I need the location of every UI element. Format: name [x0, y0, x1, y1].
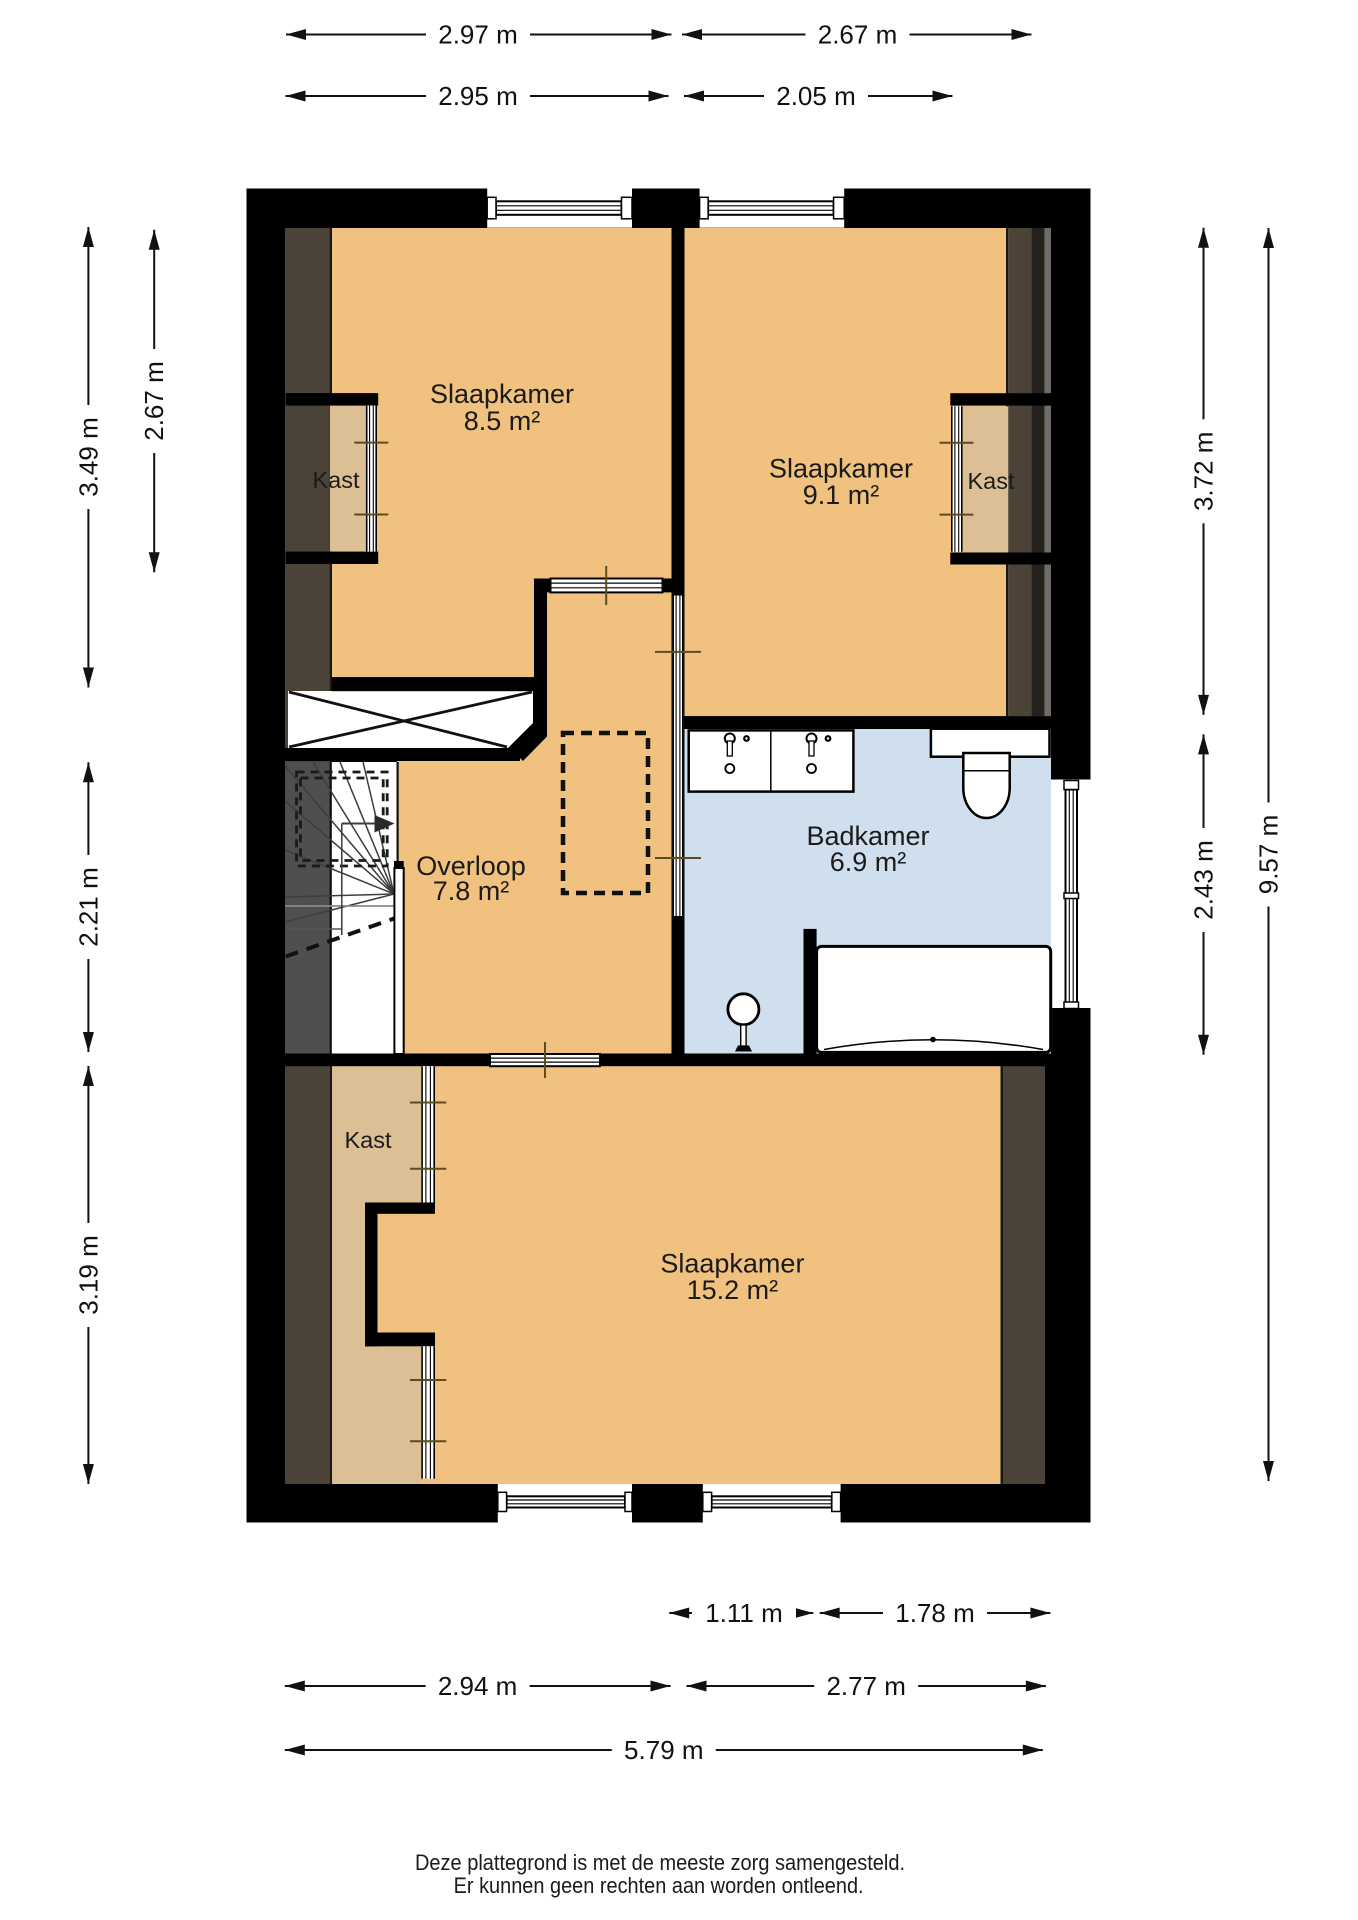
svg-text:2.21 m: 2.21 m: [73, 867, 103, 947]
svg-text:2.77 m: 2.77 m: [826, 1671, 906, 1701]
svg-text:1.11 m: 1.11 m: [705, 1598, 783, 1628]
svg-text:Kast: Kast: [967, 468, 1014, 494]
svg-text:Deze plattegrond is met de mee: Deze plattegrond is met de meeste zorg s…: [415, 1850, 905, 1875]
svg-text:2.67 m: 2.67 m: [139, 361, 169, 441]
svg-text:Slaapkamer: Slaapkamer: [660, 1248, 804, 1278]
svg-text:2.97 m: 2.97 m: [438, 20, 518, 50]
svg-text:1.78 m: 1.78 m: [895, 1598, 975, 1628]
svg-text:15.2 m²: 15.2 m²: [687, 1275, 779, 1305]
svg-text:Er kunnen geen rechten aan wor: Er kunnen geen rechten aan worden ontlee…: [454, 1873, 864, 1898]
svg-text:8.5 m²: 8.5 m²: [464, 406, 541, 436]
svg-text:Kast: Kast: [312, 467, 359, 493]
svg-text:2.43 m: 2.43 m: [1189, 840, 1219, 920]
svg-text:Slaapkamer: Slaapkamer: [430, 379, 574, 409]
svg-text:2.05 m: 2.05 m: [776, 81, 856, 111]
svg-text:2.67 m: 2.67 m: [818, 20, 898, 50]
svg-text:Slaapkamer: Slaapkamer: [769, 454, 913, 484]
svg-text:Kast: Kast: [344, 1127, 391, 1153]
svg-text:2.95 m: 2.95 m: [438, 81, 518, 111]
svg-text:6.9 m²: 6.9 m²: [830, 847, 907, 877]
svg-text:3.72 m: 3.72 m: [1189, 432, 1219, 512]
svg-text:9.57 m: 9.57 m: [1254, 815, 1284, 895]
svg-text:5.79 m: 5.79 m: [624, 1735, 704, 1765]
svg-text:2.94 m: 2.94 m: [438, 1671, 518, 1701]
svg-text:3.49 m: 3.49 m: [73, 417, 103, 497]
svg-text:7.8 m²: 7.8 m²: [433, 876, 510, 906]
svg-text:9.1 m²: 9.1 m²: [803, 480, 880, 510]
svg-text:3.19 m: 3.19 m: [73, 1235, 103, 1315]
